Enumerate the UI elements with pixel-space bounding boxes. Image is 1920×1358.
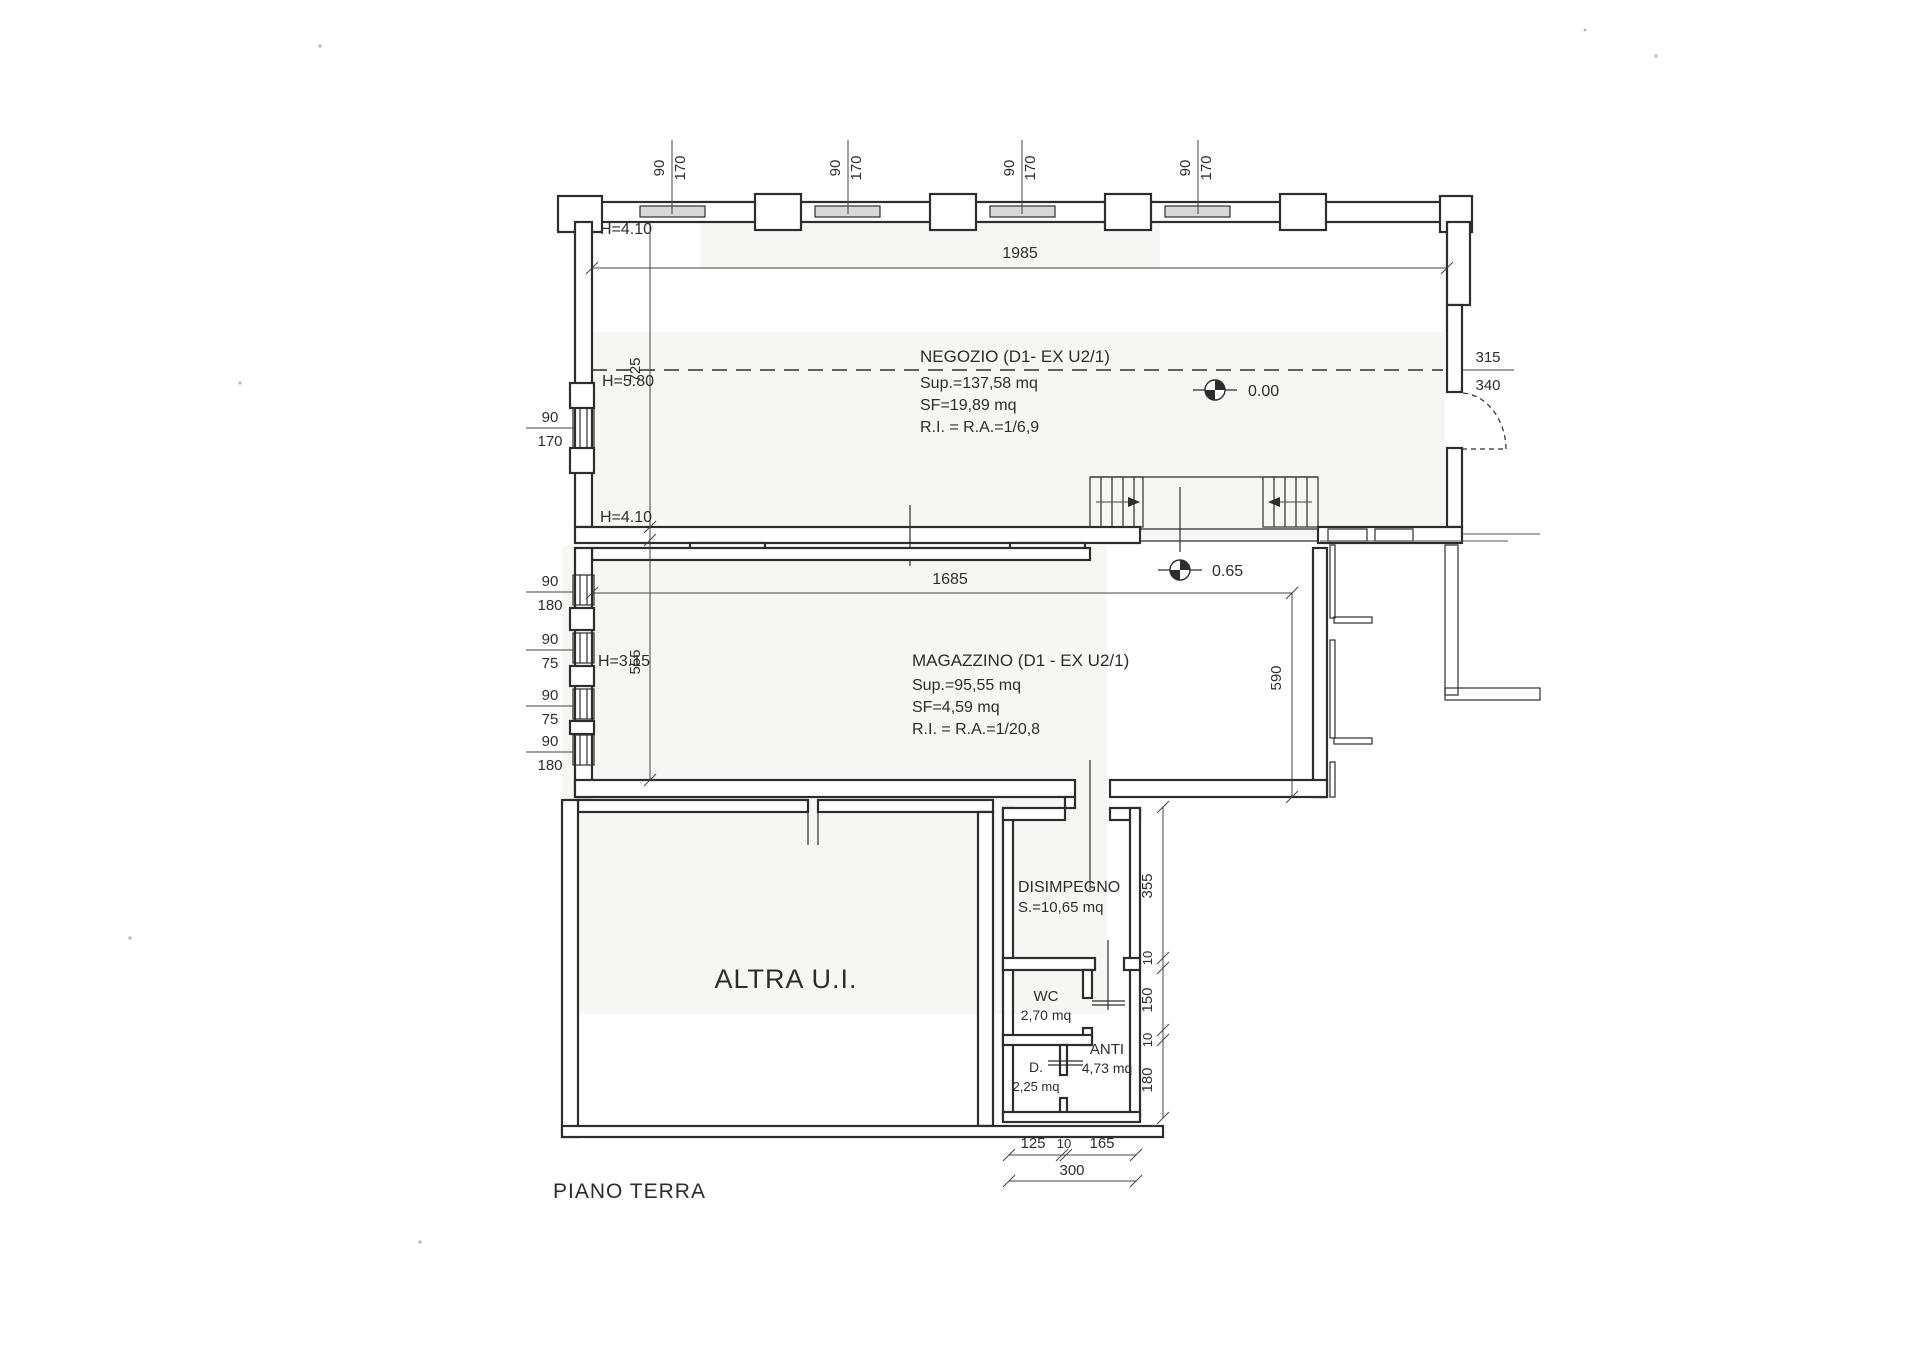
bottom-chain-labels: 125 10 165 300 [1020,1135,1114,1179]
window-dim-height: 170 [1022,155,1039,180]
left-mag-0-den: 180 [537,597,562,614]
anti-title: ANTI [1090,1041,1124,1058]
left-mag-1-num: 90 [542,631,559,648]
dim-door-bottom: 340 [1475,377,1500,394]
window-dim-width: 90 [1001,160,1018,177]
chain-150: 150 [1139,987,1156,1012]
altra-ui-title: ALTRA U.I. [714,964,857,994]
dim-magazzino-right: 590 [1268,665,1285,690]
magazzino-sf: SF=4,59 mq [912,699,1000,716]
negozio-ri: R.I. = R.A.=1/6,9 [920,419,1039,436]
window-dim-width: 90 [651,160,668,177]
top-window-labels: 90 170 90 170 90 170 90 170 [651,155,1215,180]
chain-355: 355 [1139,873,1156,898]
dim-magazzino-width: 1685 [932,571,968,588]
dim-negozio-width: 1985 [1002,245,1038,262]
wc-title: WC [1034,988,1059,1005]
d-area: 2,25 mq [1013,1079,1060,1094]
left-mag-2-den: 75 [542,711,559,728]
left-mag-2-num: 90 [542,687,559,704]
level-magazzino-label: 0.65 [1212,563,1243,580]
window-dim-height: 170 [848,155,865,180]
chain-125: 125 [1020,1135,1045,1152]
negozio-h-mid: H=5.80 [602,373,654,390]
right-chain-labels: 355 10 150 10 180 [1139,873,1156,1092]
window-dim-height: 170 [672,155,689,180]
negozio-sf: SF=19,89 mq [920,397,1017,414]
d-title: D. [1029,1059,1043,1075]
negozio-sup: Sup.=137,58 mq [920,375,1038,392]
floor-plan-sheet: 90 170 90 170 90 170 90 170 90 170 90 18… [0,0,1920,1358]
floor-title: PIANO TERRA [553,1180,706,1203]
negozio-title: NEGOZIO (D1- EX U2/1) [920,347,1110,366]
chain-180: 180 [1139,1067,1156,1092]
left-mag-3-num: 90 [542,733,559,750]
window-dim-width: 90 [1177,160,1194,177]
disimpegno-title: DISIMPEGNO [1018,879,1120,896]
chain-165: 165 [1089,1135,1114,1152]
window-dim-width: 90 [827,160,844,177]
magazzino-sup: Sup.=95,55 mq [912,677,1021,694]
negozio-h-bottom: H=4.10 [600,509,652,526]
chain-10c: 10 [1057,1136,1071,1151]
level-marker-magazzino [1158,560,1202,580]
anti-area: 4,73 mq [1082,1060,1133,1076]
dim-door-top: 315 [1475,349,1500,366]
chain-10a: 10 [1140,951,1155,965]
left-mag-1-den: 75 [542,655,559,672]
disimpegno-area: S.=10,65 mq [1018,899,1103,916]
left-mag-3-den: 180 [537,757,562,774]
chain-10b: 10 [1140,1033,1155,1047]
left-neg-den: 170 [537,433,562,450]
level-ground-label: 0.00 [1248,383,1279,400]
magazzino-title: MAGAZZINO (D1 - EX U2/1) [912,651,1129,670]
negozio-right-door [1447,392,1506,449]
right-corridor-walls [1330,545,1540,797]
left-mag-0-num: 90 [542,573,559,590]
negozio-h-top: H=4.10 [600,221,652,238]
window-dim-height: 170 [1198,155,1215,180]
chain-300: 300 [1059,1162,1084,1179]
magazzino-ri: R.I. = R.A.=1/20,8 [912,721,1040,738]
wc-area: 2,70 mq [1021,1007,1072,1023]
left-neg-num: 90 [542,409,559,426]
magazzino-h: H=3.15 [598,653,650,670]
